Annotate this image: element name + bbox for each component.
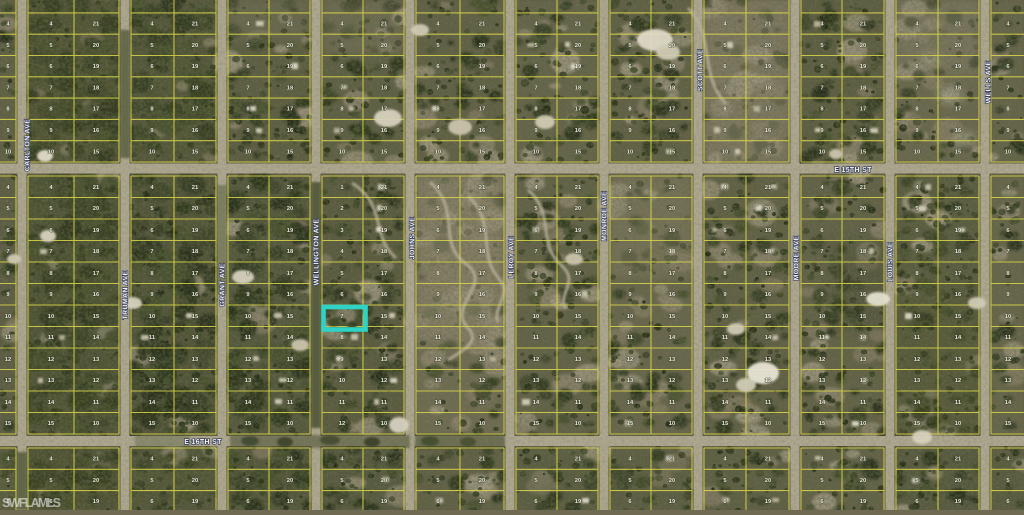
svg-text:10: 10 (1005, 314, 1011, 320)
svg-text:21: 21 (669, 185, 676, 191)
svg-text:15: 15 (287, 314, 294, 320)
svg-text:MOORE AVE: MOORE AVE (794, 236, 801, 281)
svg-text:20: 20 (381, 206, 387, 212)
svg-text:17: 17 (287, 271, 293, 277)
svg-text:10: 10 (914, 314, 920, 320)
svg-text:14: 14 (5, 400, 12, 406)
svg-text:10: 10 (575, 421, 581, 427)
svg-text:10: 10 (627, 314, 633, 320)
svg-text:20: 20 (955, 478, 961, 484)
svg-text:20: 20 (287, 478, 293, 484)
svg-text:13: 13 (435, 378, 442, 384)
svg-text:GRANT AVE: GRANT AVE (220, 263, 227, 306)
svg-text:12: 12 (339, 421, 345, 427)
svg-text:16: 16 (381, 292, 388, 298)
svg-text:7: 7 (6, 85, 9, 91)
svg-text:10: 10 (722, 314, 728, 320)
svg-text:20: 20 (575, 206, 581, 212)
svg-text:10: 10 (93, 421, 99, 427)
svg-text:13: 13 (245, 378, 252, 384)
svg-text:21: 21 (381, 22, 388, 28)
svg-text:12: 12 (819, 357, 825, 363)
svg-text:15: 15 (245, 421, 252, 427)
svg-text:10: 10 (860, 421, 866, 427)
svg-text:11: 11 (149, 335, 156, 341)
svg-text:10: 10 (955, 421, 961, 427)
svg-text:7: 7 (534, 249, 537, 255)
svg-text:13: 13 (5, 378, 12, 384)
svg-text:TRUMAN AVE: TRUMAN AVE (123, 271, 130, 320)
svg-text:12: 12 (5, 357, 11, 363)
svg-text:21: 21 (287, 185, 294, 191)
svg-text:20: 20 (575, 43, 581, 49)
svg-text:21: 21 (479, 457, 486, 463)
svg-text:10: 10 (5, 314, 11, 320)
svg-text:13: 13 (575, 357, 582, 363)
svg-text:10: 10 (533, 149, 539, 155)
svg-text:12: 12 (435, 357, 441, 363)
svg-text:15: 15 (575, 149, 582, 155)
svg-text:20: 20 (669, 43, 675, 49)
svg-text:17: 17 (381, 271, 387, 277)
svg-text:10: 10 (381, 421, 387, 427)
svg-text:19: 19 (479, 228, 486, 234)
svg-text:10: 10 (722, 149, 728, 155)
svg-text:17: 17 (93, 271, 99, 277)
svg-text:16: 16 (287, 292, 294, 298)
svg-text:WELLS AVE: WELLS AVE (986, 61, 993, 104)
svg-text:14: 14 (48, 400, 55, 406)
svg-text:15: 15 (765, 314, 772, 320)
svg-text:10: 10 (669, 421, 675, 427)
svg-text:10: 10 (765, 421, 771, 427)
svg-text:21: 21 (669, 22, 676, 28)
svg-text:10: 10 (533, 314, 539, 320)
svg-text:10: 10 (287, 421, 293, 427)
svg-text:10: 10 (149, 314, 155, 320)
svg-text:15: 15 (1005, 421, 1012, 427)
svg-text:13: 13 (765, 357, 772, 363)
svg-text:14: 14 (479, 335, 486, 341)
svg-text:20: 20 (955, 43, 961, 49)
svg-text:7: 7 (915, 249, 918, 255)
svg-text:20: 20 (381, 478, 387, 484)
svg-text:16: 16 (381, 128, 388, 134)
svg-text:21: 21 (479, 185, 486, 191)
svg-text:18: 18 (479, 85, 486, 91)
svg-text:18: 18 (479, 249, 486, 255)
svg-text:13: 13 (819, 378, 826, 384)
svg-text:21: 21 (669, 457, 676, 463)
svg-text:7: 7 (915, 85, 918, 91)
svg-text:19: 19 (287, 228, 294, 234)
svg-text:11: 11 (955, 400, 962, 406)
svg-text:15: 15 (435, 421, 442, 427)
svg-text:18: 18 (955, 249, 962, 255)
svg-text:18: 18 (955, 85, 962, 91)
svg-text:12: 12 (533, 357, 539, 363)
svg-text:11: 11 (287, 400, 294, 406)
svg-text:21: 21 (575, 185, 582, 191)
svg-text:CARLTON AVE: CARLTON AVE (25, 119, 32, 171)
svg-text:19: 19 (479, 64, 486, 70)
svg-text:15: 15 (819, 421, 826, 427)
svg-text:15: 15 (627, 421, 634, 427)
svg-text:15: 15 (287, 149, 294, 155)
svg-text:7: 7 (820, 85, 823, 91)
svg-text:15: 15 (381, 149, 388, 155)
svg-text:16: 16 (479, 292, 486, 298)
svg-text:20: 20 (479, 43, 485, 49)
svg-text:21: 21 (765, 22, 772, 28)
svg-text:7: 7 (49, 85, 52, 91)
svg-text:20: 20 (765, 43, 771, 49)
svg-text:13: 13 (533, 378, 540, 384)
svg-text:18: 18 (192, 85, 199, 91)
svg-text:15: 15 (192, 149, 199, 155)
svg-text:15: 15 (479, 149, 486, 155)
svg-text:19: 19 (765, 499, 772, 505)
svg-text:20: 20 (669, 478, 675, 484)
svg-text:10: 10 (5, 149, 11, 155)
svg-text:7: 7 (150, 249, 153, 255)
svg-text:11: 11 (575, 400, 582, 406)
svg-text:18: 18 (669, 85, 676, 91)
svg-text:16: 16 (575, 292, 582, 298)
svg-text:2: 2 (340, 206, 343, 212)
svg-text:13: 13 (479, 357, 486, 363)
svg-text:15: 15 (669, 314, 676, 320)
svg-text:7: 7 (820, 249, 823, 255)
svg-text:13: 13 (669, 357, 676, 363)
svg-text:19: 19 (955, 499, 962, 505)
svg-text:20: 20 (381, 43, 387, 49)
svg-text:19: 19 (575, 64, 582, 70)
svg-text:11: 11 (435, 335, 442, 341)
svg-text:21: 21 (765, 185, 772, 191)
svg-text:14: 14 (435, 400, 442, 406)
svg-text:19: 19 (93, 499, 100, 505)
svg-text:19: 19 (381, 64, 388, 70)
svg-text:10: 10 (914, 149, 920, 155)
svg-text:21: 21 (479, 22, 486, 28)
svg-text:19: 19 (93, 64, 100, 70)
svg-text:12: 12 (914, 357, 920, 363)
svg-text:21: 21 (955, 22, 962, 28)
svg-text:19: 19 (669, 499, 676, 505)
svg-text:16: 16 (479, 128, 486, 134)
svg-text:16: 16 (860, 128, 867, 134)
svg-text:18: 18 (575, 249, 582, 255)
svg-text:20: 20 (860, 478, 866, 484)
svg-text:10: 10 (245, 149, 251, 155)
svg-text:13: 13 (914, 378, 921, 384)
svg-text:17: 17 (765, 107, 771, 113)
svg-text:7: 7 (6, 249, 9, 255)
svg-text:14: 14 (765, 335, 772, 341)
svg-text:11: 11 (192, 400, 199, 406)
svg-text:SCOTT AVE: SCOTT AVE (698, 49, 705, 91)
svg-text:17: 17 (860, 107, 866, 113)
svg-text:12: 12 (669, 378, 675, 384)
svg-text:15: 15 (955, 149, 962, 155)
svg-text:15: 15 (93, 149, 100, 155)
svg-text:16: 16 (955, 292, 962, 298)
svg-text:21: 21 (287, 457, 294, 463)
svg-text:12: 12 (1005, 357, 1011, 363)
svg-text:7: 7 (628, 249, 631, 255)
svg-text:20: 20 (575, 478, 581, 484)
svg-text:18: 18 (765, 249, 772, 255)
svg-text:21: 21 (381, 185, 388, 191)
svg-text:13: 13 (287, 357, 294, 363)
svg-text:JOHNS AVE: JOHNS AVE (410, 217, 417, 259)
svg-text:18: 18 (669, 249, 676, 255)
svg-text:14: 14 (860, 335, 867, 341)
svg-text:18: 18 (192, 249, 199, 255)
svg-text:SWFLAMLS: SWFLAMLS (2, 496, 61, 510)
svg-text:14: 14 (722, 400, 729, 406)
svg-text:12: 12 (627, 357, 633, 363)
svg-text:WELLINGTON AVE: WELLINGTON AVE (314, 219, 321, 286)
svg-text:14: 14 (381, 335, 388, 341)
svg-text:19: 19 (669, 64, 676, 70)
svg-text:13: 13 (860, 357, 867, 363)
svg-text:17: 17 (575, 107, 581, 113)
svg-text:15: 15 (860, 149, 867, 155)
svg-text:16: 16 (93, 292, 100, 298)
svg-text:15: 15 (149, 421, 156, 427)
svg-text:15: 15 (192, 314, 199, 320)
svg-text:17: 17 (860, 271, 866, 277)
svg-text:MONROE AVE: MONROE AVE (602, 191, 609, 241)
svg-text:15: 15 (914, 421, 921, 427)
svg-text:20: 20 (192, 478, 198, 484)
svg-text:17: 17 (93, 107, 99, 113)
svg-text:16: 16 (669, 128, 676, 134)
svg-text:19: 19 (765, 228, 772, 234)
svg-text:18: 18 (381, 85, 388, 91)
svg-text:21: 21 (93, 185, 100, 191)
svg-text:14: 14 (669, 335, 676, 341)
svg-text:12: 12 (93, 378, 99, 384)
svg-text:10: 10 (149, 149, 155, 155)
svg-text:7: 7 (1006, 249, 1009, 255)
svg-text:7: 7 (340, 85, 343, 91)
svg-text:19: 19 (860, 499, 867, 505)
svg-text:20: 20 (287, 43, 293, 49)
svg-text:14: 14 (287, 335, 294, 341)
svg-text:18: 18 (287, 85, 294, 91)
svg-text:19: 19 (575, 228, 582, 234)
svg-text:20: 20 (93, 206, 99, 212)
svg-text:18: 18 (765, 85, 772, 91)
svg-text:17: 17 (575, 271, 581, 277)
svg-text:21: 21 (860, 185, 867, 191)
svg-text:13: 13 (722, 378, 729, 384)
svg-text:19: 19 (287, 64, 294, 70)
svg-text:16: 16 (575, 128, 582, 134)
svg-text:12: 12 (575, 378, 581, 384)
svg-text:12: 12 (479, 378, 485, 384)
svg-text:21: 21 (287, 22, 294, 28)
svg-text:20: 20 (93, 478, 99, 484)
svg-text:16: 16 (765, 292, 772, 298)
svg-text:14: 14 (533, 400, 540, 406)
svg-text:16: 16 (192, 292, 199, 298)
svg-text:LOUIS AVE: LOUIS AVE (888, 242, 895, 282)
svg-text:21: 21 (575, 22, 582, 28)
svg-text:19: 19 (192, 499, 199, 505)
svg-text:12: 12 (765, 378, 771, 384)
svg-text:19: 19 (93, 228, 100, 234)
svg-text:20: 20 (479, 478, 485, 484)
svg-text:19: 19 (381, 228, 388, 234)
svg-text:15: 15 (575, 314, 582, 320)
svg-text:11: 11 (722, 335, 729, 341)
svg-text:10: 10 (192, 421, 198, 427)
svg-text:12: 12 (245, 357, 251, 363)
svg-text:7: 7 (436, 249, 439, 255)
svg-text:17: 17 (192, 271, 198, 277)
svg-text:11: 11 (245, 335, 252, 341)
svg-text:21: 21 (93, 457, 100, 463)
svg-text:11: 11 (819, 335, 826, 341)
svg-text:15: 15 (955, 314, 962, 320)
svg-text:17: 17 (955, 271, 961, 277)
svg-text:11: 11 (533, 335, 540, 341)
svg-text:21: 21 (955, 185, 962, 191)
svg-text:17: 17 (669, 271, 675, 277)
svg-text:19: 19 (192, 228, 199, 234)
svg-text:18: 18 (381, 249, 388, 255)
svg-text:16: 16 (192, 128, 199, 134)
svg-text:21: 21 (192, 457, 199, 463)
svg-text:11: 11 (627, 335, 634, 341)
svg-text:19: 19 (860, 228, 867, 234)
svg-text:16: 16 (955, 128, 962, 134)
svg-text:10: 10 (819, 149, 825, 155)
svg-text:7: 7 (436, 85, 439, 91)
svg-text:11: 11 (914, 335, 921, 341)
svg-text:7: 7 (1006, 85, 1009, 91)
svg-text:11: 11 (860, 400, 867, 406)
svg-text:12: 12 (287, 378, 293, 384)
svg-text:19: 19 (479, 499, 486, 505)
svg-text:18: 18 (287, 249, 294, 255)
svg-text:21: 21 (381, 457, 388, 463)
svg-text:10: 10 (479, 421, 485, 427)
svg-text:16: 16 (669, 292, 676, 298)
svg-text:10: 10 (435, 149, 441, 155)
svg-text:15: 15 (765, 149, 772, 155)
svg-text:17: 17 (479, 107, 485, 113)
svg-text:14: 14 (914, 400, 921, 406)
svg-text:14: 14 (627, 400, 634, 406)
svg-text:15: 15 (381, 314, 388, 320)
svg-text:10: 10 (339, 149, 345, 155)
svg-text:11: 11 (339, 400, 346, 406)
svg-text:19: 19 (575, 499, 582, 505)
svg-text:14: 14 (819, 400, 826, 406)
svg-text:20: 20 (955, 206, 961, 212)
svg-text:20: 20 (93, 43, 99, 49)
svg-text:7: 7 (723, 249, 726, 255)
svg-text:15: 15 (669, 149, 676, 155)
svg-text:11: 11 (1005, 335, 1012, 341)
svg-text:15: 15 (93, 314, 100, 320)
svg-text:20: 20 (192, 206, 198, 212)
svg-text:10: 10 (48, 314, 54, 320)
svg-text:21: 21 (192, 22, 199, 28)
svg-text:21: 21 (575, 457, 582, 463)
svg-text:12: 12 (955, 378, 961, 384)
svg-text:14: 14 (192, 335, 199, 341)
svg-text:20: 20 (860, 43, 866, 49)
svg-text:10: 10 (48, 149, 54, 155)
svg-text:18: 18 (860, 85, 867, 91)
svg-text:19: 19 (955, 64, 962, 70)
svg-text:13: 13 (381, 357, 388, 363)
svg-text:11: 11 (48, 335, 55, 341)
svg-text:21: 21 (192, 185, 199, 191)
svg-text:19: 19 (765, 64, 772, 70)
svg-text:16: 16 (860, 292, 867, 298)
svg-text:7: 7 (723, 85, 726, 91)
svg-text:13: 13 (627, 378, 634, 384)
svg-text:E 15TH ST: E 15TH ST (834, 167, 872, 174)
svg-text:17: 17 (381, 107, 387, 113)
svg-text:18: 18 (93, 249, 100, 255)
svg-text:21: 21 (93, 22, 100, 28)
svg-text:20: 20 (479, 206, 485, 212)
svg-text:11: 11 (765, 400, 772, 406)
svg-text:19: 19 (287, 499, 294, 505)
svg-text:10: 10 (819, 314, 825, 320)
svg-text:18: 18 (860, 249, 867, 255)
svg-text:15: 15 (48, 421, 55, 427)
svg-text:15: 15 (5, 421, 12, 427)
svg-text:15: 15 (533, 421, 540, 427)
svg-text:7: 7 (49, 249, 52, 255)
svg-text:13: 13 (1005, 378, 1012, 384)
svg-text:18: 18 (575, 85, 582, 91)
svg-text:15: 15 (860, 314, 867, 320)
svg-text:7: 7 (534, 85, 537, 91)
svg-text:13: 13 (48, 378, 55, 384)
svg-text:21: 21 (860, 457, 867, 463)
svg-text:15: 15 (722, 421, 729, 427)
svg-text:17: 17 (192, 107, 198, 113)
svg-text:10: 10 (245, 314, 251, 320)
svg-text:17: 17 (955, 107, 961, 113)
svg-text:14: 14 (955, 335, 962, 341)
svg-text:19: 19 (669, 228, 676, 234)
svg-text:14: 14 (149, 400, 156, 406)
svg-text:10: 10 (627, 149, 633, 155)
svg-text:7: 7 (628, 85, 631, 91)
svg-text:20: 20 (765, 206, 771, 212)
svg-text:13: 13 (955, 357, 962, 363)
svg-text:20: 20 (287, 206, 293, 212)
svg-text:7: 7 (246, 249, 249, 255)
svg-text:13: 13 (93, 357, 100, 363)
svg-text:19: 19 (192, 64, 199, 70)
svg-text:10: 10 (1005, 149, 1011, 155)
svg-text:LEROY AVE: LEROY AVE (509, 236, 516, 278)
svg-text:20: 20 (192, 43, 198, 49)
svg-text:20: 20 (669, 206, 675, 212)
